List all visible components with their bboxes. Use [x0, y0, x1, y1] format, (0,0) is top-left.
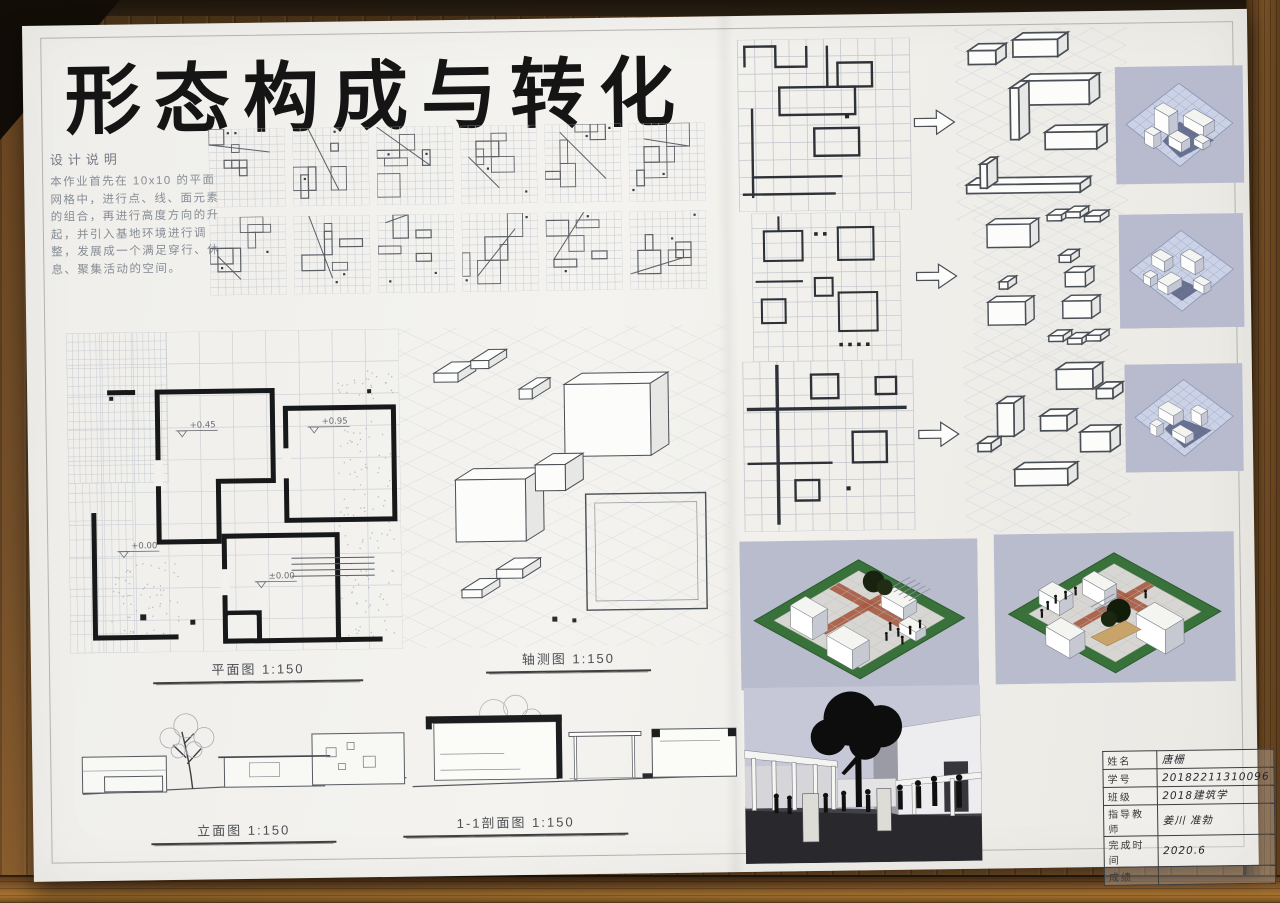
- grid-study-cell: [208, 128, 285, 207]
- svg-text:±0.00: ±0.00: [269, 571, 295, 581]
- plan-drawing: +0.45 +0.95 ±0.00 +0.00: [66, 329, 402, 654]
- model-render-3: [1121, 363, 1247, 473]
- svg-text:+0.45: +0.45: [190, 420, 216, 430]
- photo-scene: 形态构成与转化 设计说明 本作业首先在 10x10 的平面网格中，进行点、线、面…: [0, 0, 1280, 903]
- axonometric-label: 轴测图 1:150: [486, 647, 651, 673]
- transform-arrow-icon: [918, 421, 960, 448]
- grid-study-cell: [546, 212, 623, 291]
- transform-axon-3: [959, 349, 1137, 533]
- grid-study-cell: [460, 125, 537, 204]
- titleblock-value-date: 2020.6: [1158, 834, 1275, 867]
- transform-grid-1: [734, 38, 914, 212]
- plan-label: 平面图 1:150: [153, 657, 363, 684]
- transform-grid-3: [739, 360, 919, 532]
- titleblock-value-class: 2018建筑学: [1158, 785, 1275, 805]
- grid-study-cell: [378, 214, 455, 293]
- grid-study-cell: [292, 127, 369, 206]
- perspective-render: [743, 685, 982, 864]
- aerial-render-left: [739, 537, 979, 692]
- section-drawing: [403, 688, 745, 808]
- design-notes: 设计说明 本作业首先在 10x10 的平面网格中，进行点、线、面元素的组合，再进…: [50, 147, 224, 279]
- transform-arrow-icon: [913, 109, 955, 136]
- section-label: 1-1剖面图 1:150: [403, 811, 628, 838]
- transform-axon-1: [954, 27, 1129, 221]
- model-render-2: [1117, 213, 1247, 329]
- design-notes-body: 本作业首先在 10x10 的平面网格中，进行点、线、面元素的组合，再进行高度方向…: [50, 172, 223, 279]
- grid-study-cell: [210, 216, 287, 295]
- svg-text:+0.95: +0.95: [321, 416, 347, 426]
- titleblock-label: 班级: [1103, 787, 1158, 806]
- transform-arrow-icon: [915, 263, 957, 290]
- grid-study-cell: [630, 210, 707, 289]
- transform-axon-2: [957, 203, 1134, 363]
- elevation-label: 立面图 1:150: [151, 819, 336, 846]
- titleblock-label: 学号: [1103, 769, 1158, 788]
- grid-study-cell: [376, 126, 453, 205]
- titleblock-label: 完成时间: [1104, 836, 1159, 868]
- svg-text:+0.00: +0.00: [131, 541, 157, 551]
- grid-study-cell: [462, 213, 539, 292]
- grid-study-cell: [294, 215, 371, 294]
- design-notes-heading: 设计说明: [50, 147, 222, 168]
- aerial-render-right: [991, 531, 1238, 684]
- axonometric-drawing: [398, 324, 732, 649]
- grid-study-cell: [544, 124, 621, 203]
- presentation-board: 形态构成与转化 设计说明 本作业首先在 10x10 的平面网格中，进行点、线、面…: [22, 9, 1259, 882]
- titleblock-label: 指导教师: [1103, 805, 1158, 837]
- titleblock-label: 成绩: [1104, 867, 1159, 886]
- model-render-1: [1115, 61, 1245, 189]
- title-block: 姓名唐栅 学号20182211310096 班级2018建筑学 指导教师姜川 准…: [1102, 749, 1276, 886]
- titleblock-value-student-id: 20182211310096: [1157, 767, 1274, 787]
- elevation-drawing: [73, 693, 415, 813]
- titleblock-value-advisor: 姜川 准勃: [1158, 803, 1275, 836]
- grid-study-cell: [628, 122, 705, 201]
- titleblock-value-grade: [1159, 865, 1276, 885]
- grid-studies: [208, 122, 707, 297]
- titleblock-label: 姓名: [1103, 751, 1158, 770]
- titleblock-value-name: 唐栅: [1157, 749, 1274, 769]
- transform-grid-2: [737, 212, 917, 362]
